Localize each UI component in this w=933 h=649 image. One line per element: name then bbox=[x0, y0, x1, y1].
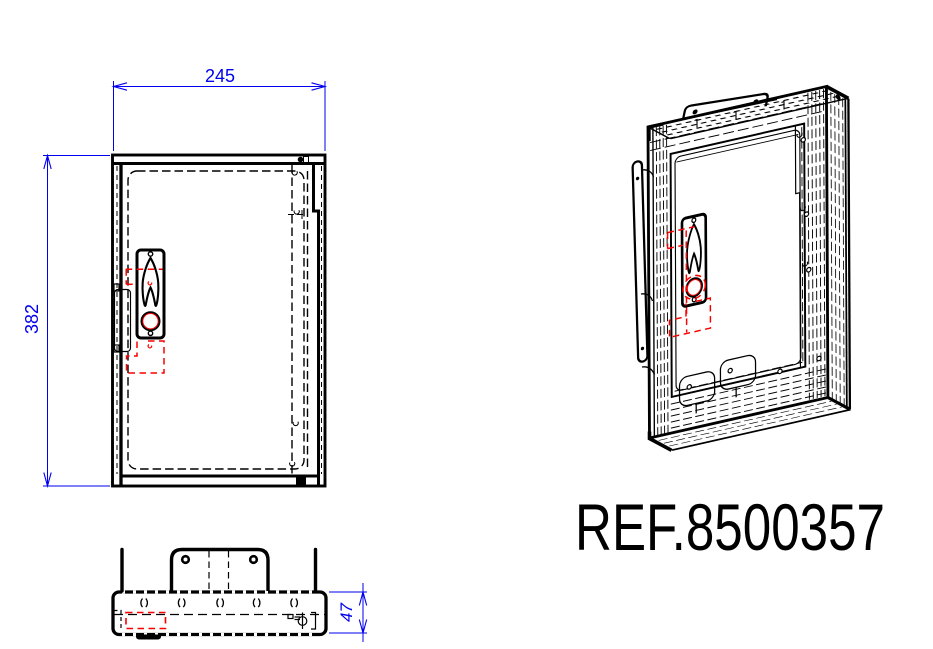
svg-text:47: 47 bbox=[337, 603, 356, 622]
svg-text:245: 245 bbox=[205, 66, 235, 86]
svg-text:382: 382 bbox=[22, 304, 42, 334]
svg-text:REF.8500357: REF.8500357 bbox=[575, 490, 885, 564]
